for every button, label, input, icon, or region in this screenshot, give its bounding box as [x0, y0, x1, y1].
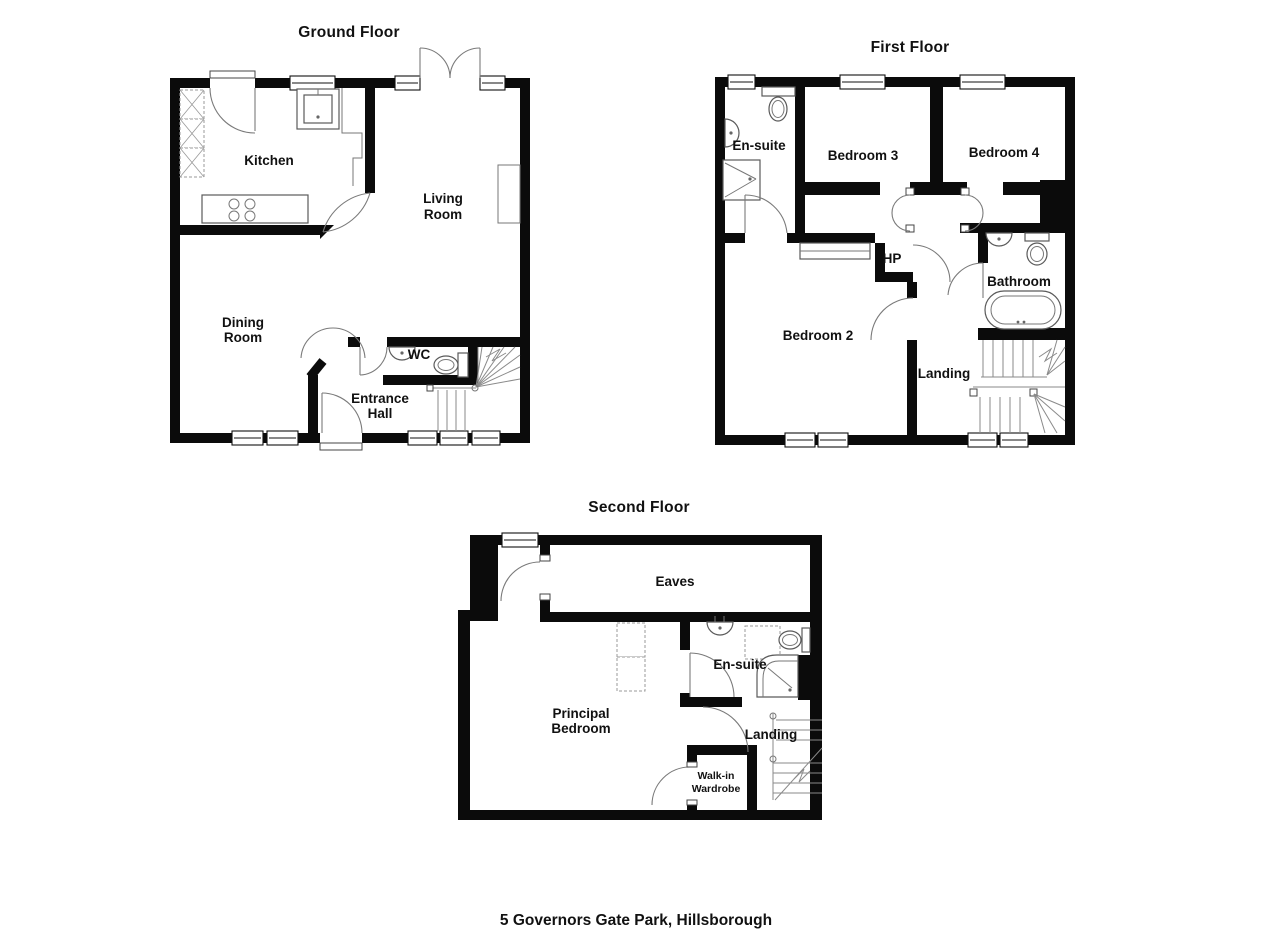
gf-kitchen-cabinets-hatch — [180, 90, 204, 177]
ff-label-landing: Landing — [918, 366, 971, 381]
gf-label-dining-2: Room — [224, 330, 262, 345]
gf-counter-line — [342, 88, 362, 186]
gf-label-living-1: Living — [423, 191, 463, 206]
sf-label-eaves: Eaves — [655, 574, 694, 589]
front-door-frame — [320, 443, 362, 450]
sf-windows — [502, 533, 538, 547]
ff-ensuite-toilet-icon — [762, 87, 795, 121]
second-floor-plan: Eaves En-suite Principal Bedroom Landing… — [458, 498, 822, 828]
ff-label-bathroom: Bathroom — [987, 274, 1051, 289]
gf-walls — [170, 77, 530, 444]
address-caption: 5 Governors Gate Park, Hillsborough — [500, 912, 772, 930]
sf-label-wardrobe-2: Wardrobe — [692, 783, 741, 795]
ff-bath-icon — [985, 291, 1061, 329]
floorplan-page: Ground Floor First Floor Second Floor 5 … — [0, 0, 1280, 930]
gf-label-hall-2: Hall — [368, 406, 393, 421]
ground-floor-title: Ground Floor — [298, 24, 399, 42]
sf-ensuite-dashed-unit — [745, 626, 780, 659]
ff-wardrobe — [800, 243, 870, 259]
sf-label-landing: Landing — [745, 727, 798, 742]
sf-label-wardrobe-1: Walk-in — [698, 770, 735, 782]
gf-sink-icon — [297, 89, 339, 129]
ff-label-bedroom2: Bedroom 2 — [783, 328, 854, 343]
ff-label-ensuite: En-suite — [732, 138, 786, 153]
gf-hob-icon — [202, 195, 308, 223]
gf-label-hall-1: Entrance — [351, 391, 409, 406]
ff-label-hp: HP — [883, 251, 902, 266]
gf-label-wc: WC — [408, 347, 431, 362]
sf-label-ensuite: En-suite — [713, 657, 767, 672]
sf-label-principal-2: Bedroom — [551, 721, 610, 736]
first-floor-title: First Floor — [871, 39, 950, 57]
ff-label-bedroom4: Bedroom 4 — [969, 145, 1040, 160]
ground-floor-plan: Kitchen Living Room Dining Room WC Entra… — [170, 45, 530, 450]
ff-shower-icon — [723, 160, 760, 200]
first-floor-plan: En-suite Bedroom 3 Bedroom 4 HP Bathroom… — [715, 67, 1075, 452]
gf-label-kitchen: Kitchen — [244, 153, 294, 168]
gf-label-living-2: Room — [424, 207, 462, 222]
gf-fireplace — [498, 165, 520, 223]
ff-label-bedroom3: Bedroom 3 — [828, 148, 899, 163]
gf-wc-toilet-icon — [434, 353, 468, 377]
sf-bedroom-dashed-units — [617, 623, 645, 691]
ff-door-arcs — [745, 188, 983, 340]
sf-label-principal-1: Principal — [552, 706, 609, 721]
back-door-frame — [210, 71, 255, 78]
gf-label-dining-1: Dining — [222, 315, 264, 330]
sf-ensuite-toilet-icon — [779, 628, 810, 652]
ff-bathroom-sink-icon — [986, 233, 1012, 246]
ff-stairs — [970, 340, 1065, 433]
ff-bathroom-toilet-icon — [1025, 233, 1049, 265]
